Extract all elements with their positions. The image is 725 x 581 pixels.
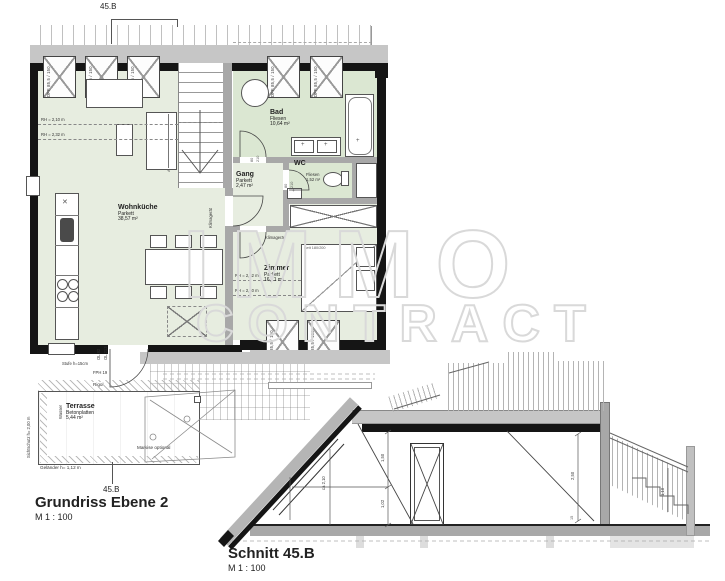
- sloped-railing: [388, 383, 439, 412]
- kitchen-divider: [55, 245, 79, 246]
- stair-landing-line: [178, 122, 222, 123]
- chair: [200, 286, 217, 299]
- dim-150: 1,50: [381, 446, 386, 462]
- room-label-bad: Bad Fliesen 10,64 m²: [270, 109, 290, 128]
- dim-102: 1,02: [381, 492, 386, 508]
- chair: [200, 235, 217, 248]
- chair: [150, 235, 167, 248]
- door-height-label: 210: [256, 146, 260, 162]
- door-height-label: 210: [290, 172, 294, 188]
- coffee-table: [116, 124, 133, 156]
- roof-railing: [508, 352, 558, 411]
- stove-burner: [68, 279, 79, 290]
- plan-scale: M 1 : 100: [35, 513, 73, 523]
- roof-railing: [448, 363, 508, 411]
- kitchen-divider: [55, 215, 79, 216]
- ol213-label: OL 213: [104, 326, 109, 360]
- dimension-lines: [290, 430, 668, 527]
- room-label-wc: WC: [294, 160, 306, 168]
- basin-cross: +: [301, 142, 305, 149]
- shower-closet: [356, 163, 377, 198]
- section-floor-slab: [250, 524, 710, 536]
- drawing-sheet: 45.B DFF 85,5 / 150 DFF 85,5 / 150: [0, 0, 725, 581]
- wardrobe: [290, 205, 377, 228]
- markise-label: Markise optional: [137, 445, 170, 450]
- rh-line: [38, 139, 178, 140]
- chair: [175, 235, 192, 248]
- wall-west: [30, 63, 38, 345]
- section-line-top-h: [111, 19, 177, 20]
- room-label-zimmer: Zimmer Parkett 16,71 m²: [264, 265, 289, 284]
- rigol-strip: [38, 380, 200, 391]
- terrace-railing-edge: [40, 456, 198, 463]
- gelaender-label: Geländer h= 1,12 m: [40, 465, 81, 470]
- stove-burner: [57, 291, 68, 302]
- pillow: [356, 247, 375, 267]
- wall-wk-gang-a: [225, 188, 233, 196]
- sichtschutz-label: Sichtschutz h= 2,00 m: [27, 396, 32, 458]
- room-label-wc-sub: Fliesen 1,52 m²: [306, 173, 320, 182]
- dim-250: 2,50: [571, 464, 576, 480]
- lower-wall-ghost: [610, 536, 694, 548]
- lower-roof-band-east: [250, 350, 390, 364]
- fph-label: FPH 19: [93, 371, 107, 376]
- section-line-bottom: [112, 462, 113, 484]
- section-diagonals: [358, 424, 594, 524]
- ol82-label: OL 82: [97, 326, 102, 360]
- basin-cross: +: [324, 142, 328, 149]
- room-label-wohnkueche: Wohnküche Parkett 38,57 m²: [118, 204, 158, 223]
- dim-110: 1,10: [661, 480, 666, 496]
- sideboard: [86, 79, 143, 108]
- section-line-top: [111, 19, 112, 44]
- toilet-cistern: [341, 171, 349, 186]
- plan-title: Grundriss Ebene 2: [35, 495, 168, 512]
- roof-railing: [558, 361, 606, 411]
- door-width-label: 80: [250, 146, 254, 162]
- wall-east: [377, 63, 386, 350]
- roof-window: DFF 85,5 / 150: [267, 56, 300, 98]
- stufe-label: Stufe h=15cm: [62, 362, 88, 367]
- window-south: [48, 343, 75, 355]
- room-label-gang: Gang Parkett 2,47 m²: [236, 171, 254, 190]
- kitchen-divider: [55, 275, 79, 276]
- staircase: [178, 63, 223, 188]
- roof-window: DFF 85,5 / 150: [310, 56, 343, 98]
- chair: [150, 286, 167, 299]
- lower-wall-ghost: [356, 536, 364, 548]
- kitchen-divider: [55, 307, 79, 308]
- wall-gang-zimmer-a: [225, 226, 240, 232]
- wall-bad-south-a: [233, 157, 240, 163]
- bathtub-inner: [348, 97, 372, 155]
- terrace-screen-edge: [40, 393, 47, 463]
- roof-window: DFF 85,5 / 150: [43, 56, 76, 98]
- wall-gang-wc-a: [283, 163, 289, 170]
- klimageraet-label: Klimagerät: [209, 196, 214, 228]
- rh-label: RH = 2,10 m: [235, 289, 259, 294]
- stair-railing: [612, 436, 688, 522]
- door-width-label: 80: [284, 172, 288, 188]
- stove-burner: [68, 291, 79, 302]
- wall-gang-zimmer-b: [266, 226, 290, 232]
- klimageraet-label: Klimagerät: [265, 236, 285, 241]
- skylight-dashed-box: [167, 306, 207, 337]
- rh-label: RH = 2,52 m: [235, 274, 259, 279]
- lower-wall-ghost: [546, 536, 554, 548]
- stove-burner: [57, 279, 68, 290]
- kitchen-sink: [60, 218, 74, 242]
- section-scale: M 1 : 100: [228, 564, 266, 574]
- section-title: Schnitt 45.B: [228, 546, 315, 563]
- lower-wall-ghost: [420, 536, 428, 548]
- section-line-top-tick: [177, 19, 178, 27]
- eave-dashed-line: [233, 42, 372, 43]
- section-ceiling: [362, 424, 602, 432]
- section-east-wall: [600, 402, 610, 532]
- room-label-terrasse: Terrasse Betonplatten 5,44 m²: [66, 403, 95, 422]
- sofa: [146, 112, 177, 170]
- eave-corner-line: [371, 26, 372, 46]
- pillow: [356, 270, 375, 291]
- tub-cross: +: [356, 138, 360, 145]
- wc-sink-cross: +: [292, 189, 295, 195]
- rh-line: [38, 124, 178, 125]
- dim-119: 1,19: [283, 490, 288, 506]
- rigol-label: Rigol: [92, 382, 104, 387]
- wall-stair-east: [222, 63, 232, 188]
- rh-line: [233, 295, 301, 296]
- section-roof-deck: [352, 410, 608, 424]
- downpipe: [194, 396, 201, 403]
- rh-label: RH = 2,32 m: [41, 133, 65, 138]
- bed-label: Bett 180/200: [304, 246, 326, 250]
- kitchen-x-mark: ✕: [62, 199, 68, 207]
- chair: [175, 286, 192, 299]
- rh-label: RH = 2,10 m: [41, 118, 65, 123]
- lower-roof-gutter: [268, 382, 372, 389]
- wasser-label: Wasser: [59, 393, 64, 419]
- section-door: [410, 443, 444, 525]
- toilet-bowl: [323, 172, 343, 187]
- window-west: [26, 176, 40, 196]
- washing-machine: [241, 79, 269, 107]
- stair-outer-wall: [686, 446, 695, 536]
- section-marker-top: 45.B: [100, 3, 116, 12]
- wall-wk-gang-b: [225, 226, 233, 345]
- dim-ca210: ca 2,10: [322, 466, 327, 490]
- sofa-backrest-line: [168, 114, 169, 168]
- dining-table: [145, 249, 223, 285]
- dim-15: 15: [570, 510, 574, 520]
